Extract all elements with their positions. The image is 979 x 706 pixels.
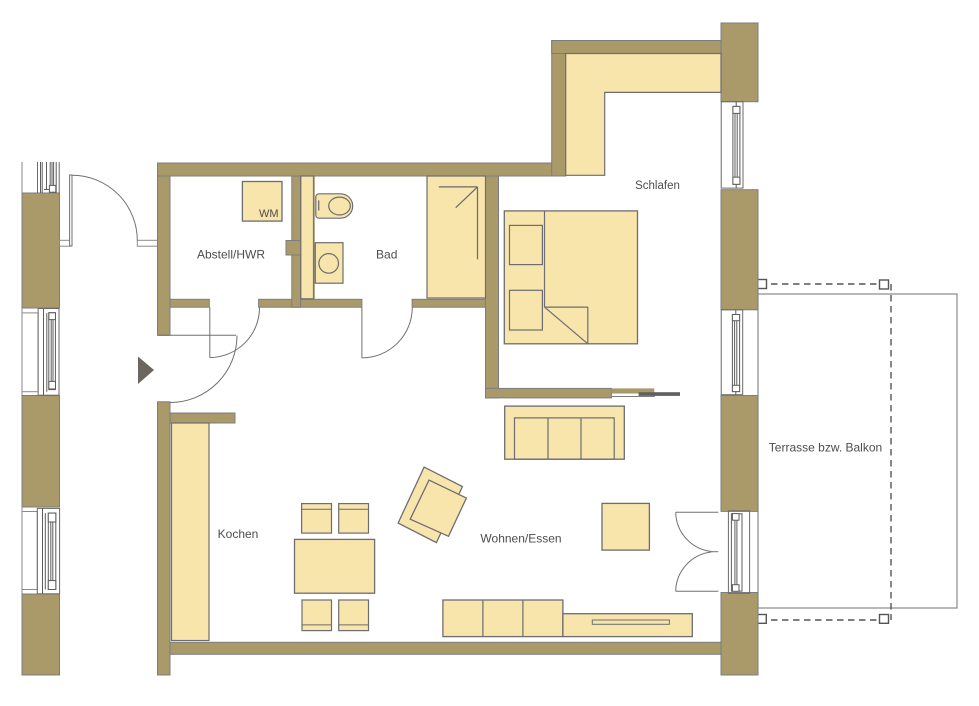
svg-text:Wohnen/Essen: Wohnen/Essen <box>480 532 561 546</box>
svg-text:Kochen: Kochen <box>218 527 259 541</box>
svg-text:Bad: Bad <box>376 247 397 261</box>
svg-text:Schlafen: Schlafen <box>635 180 680 192</box>
svg-text:WM: WM <box>259 208 279 220</box>
svg-text:Abstell/HWR: Abstell/HWR <box>197 247 265 261</box>
svg-text:Terrasse bzw. Balkon: Terrasse bzw. Balkon <box>769 441 882 455</box>
